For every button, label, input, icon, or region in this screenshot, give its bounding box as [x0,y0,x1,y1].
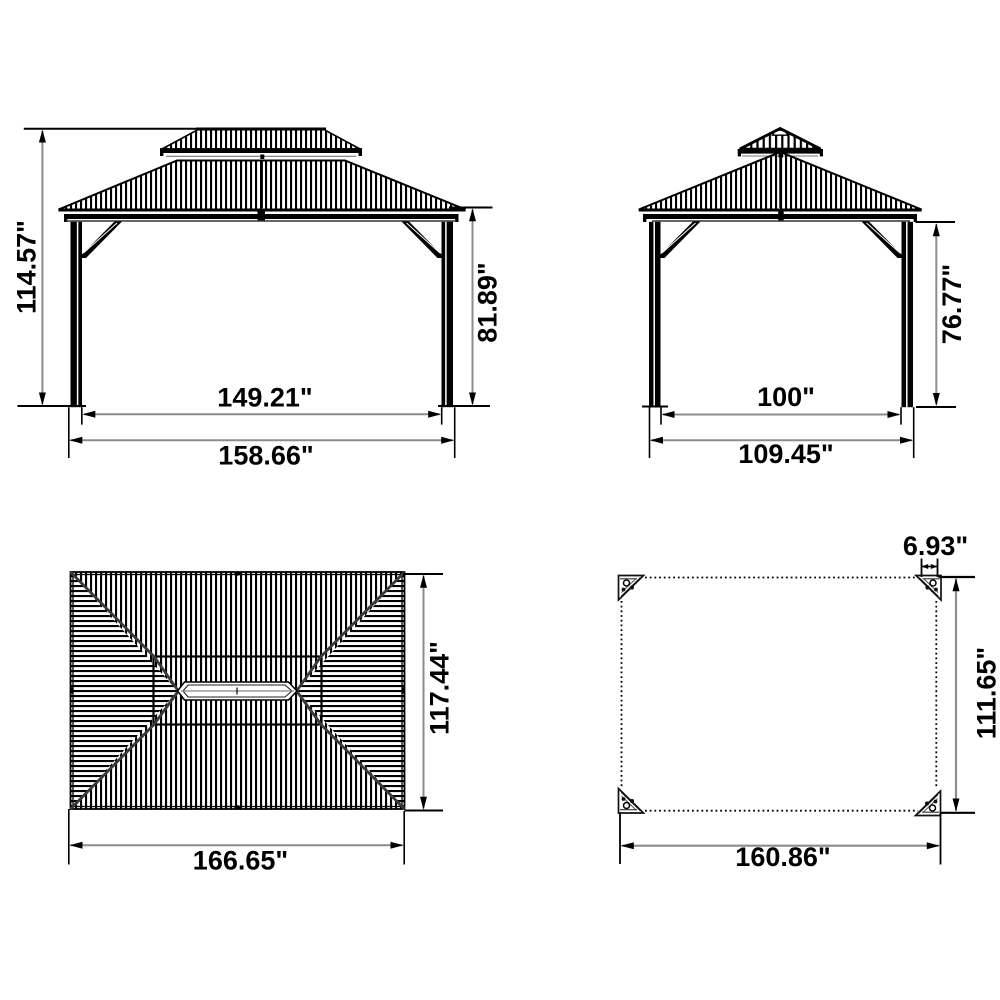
svg-text:114.57": 114.57" [12,220,42,314]
svg-text:109.45": 109.45" [738,439,833,469]
svg-text:100": 100" [757,382,815,412]
svg-text:117.44": 117.44" [425,641,455,735]
svg-text:76.77": 76.77" [937,264,967,344]
svg-text:158.66": 158.66" [218,441,313,471]
svg-text:166.65": 166.65" [193,846,288,876]
svg-text:160.86": 160.86" [735,842,830,872]
svg-text:6.93": 6.93" [903,531,968,561]
svg-text:81.89": 81.89" [473,262,503,342]
svg-text:111.65": 111.65" [972,647,1000,739]
svg-text:149.21": 149.21" [217,383,312,413]
